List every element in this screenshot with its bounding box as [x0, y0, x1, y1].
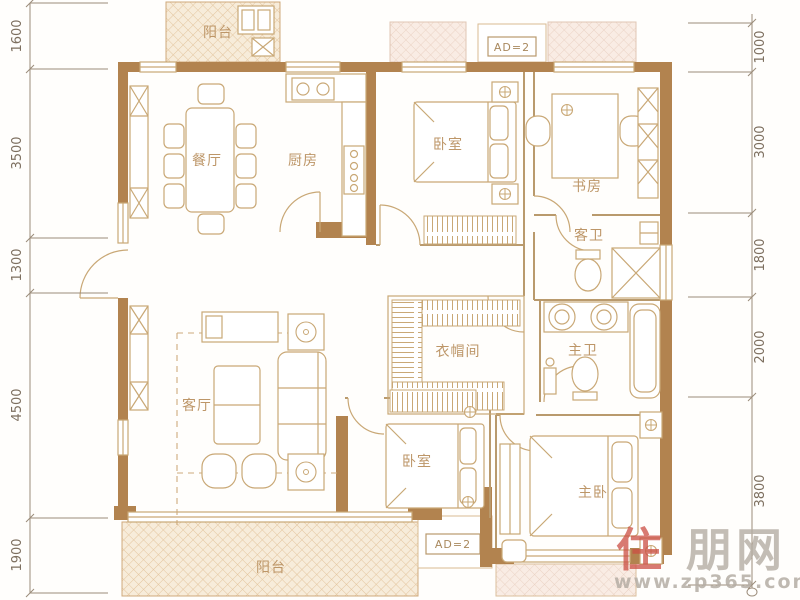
wardrobe	[424, 216, 516, 244]
toilet	[572, 357, 598, 391]
bed	[414, 102, 516, 182]
room-label-guest-bath: 客卫	[574, 227, 604, 244]
cabinet	[130, 306, 148, 410]
room-label-master-bath: 主卫	[568, 343, 598, 359]
living-furniture	[130, 306, 340, 525]
dim-left-1300: 1300	[10, 248, 25, 281]
room-label-cloakroom: 衣帽间	[436, 344, 481, 360]
ac-unit-icon	[288, 314, 324, 350]
desk	[552, 94, 618, 178]
bedroom2-furniture	[386, 390, 484, 508]
dim-right-3800: 3800	[753, 474, 768, 507]
ad-annotation-top: AD=2	[494, 41, 530, 54]
master-bath-fixtures	[544, 302, 660, 400]
bookshelf	[638, 88, 658, 198]
dim-right-2000: 2000	[753, 330, 768, 363]
toilet	[575, 259, 601, 291]
watermark: 住 朋网 www.zp365.com	[614, 523, 800, 593]
dim-left-1900: 1900	[10, 538, 25, 571]
watermark-brand-red: 住	[616, 523, 666, 577]
room-label-kitchen: 厨房	[288, 153, 318, 169]
bedroom1-furniture	[414, 82, 518, 244]
room-label-living: 客厅	[182, 397, 212, 414]
svg-text:住 朋网: 住 朋网	[616, 523, 786, 577]
dim-left-3500: 3500	[10, 136, 25, 169]
bed	[386, 424, 484, 508]
dim-left-4500: 4500	[10, 388, 25, 421]
room-label-bedroom1: 卧室	[433, 136, 463, 153]
watermark-brand-gray: 朋网	[686, 523, 786, 577]
floor-plan-drawing: AD=2 AD=2	[0, 0, 800, 600]
room-label-bedroom2: 卧室	[402, 453, 432, 470]
dim-right-1800: 1800	[753, 238, 768, 271]
ac-unit-icon	[288, 454, 324, 490]
sofa	[278, 352, 326, 460]
floor-plan-page: AD=2 AD=2	[0, 0, 800, 600]
room-label-balcony-bottom: 阳台	[256, 560, 286, 576]
ad-shaft-top: AD=2	[478, 24, 546, 62]
room-label-master-bedroom: 主卧	[578, 485, 608, 501]
watermark-url: www.zp365.com	[614, 571, 800, 593]
room-label-balcony-top: 阳台	[203, 25, 233, 41]
dim-left-1600: 1600	[10, 19, 25, 52]
room-label-dining: 餐厅	[192, 153, 222, 169]
ad-annotation-bottom: AD=2	[435, 538, 471, 551]
vanity-counter	[544, 302, 628, 332]
cabinet	[130, 86, 148, 218]
wardrobe	[390, 390, 476, 412]
utility-box-icon	[252, 38, 274, 56]
room-label-study: 书房	[572, 179, 602, 195]
dim-right-3000: 3000	[753, 125, 768, 158]
dim-right-1000: 1000	[753, 30, 768, 63]
